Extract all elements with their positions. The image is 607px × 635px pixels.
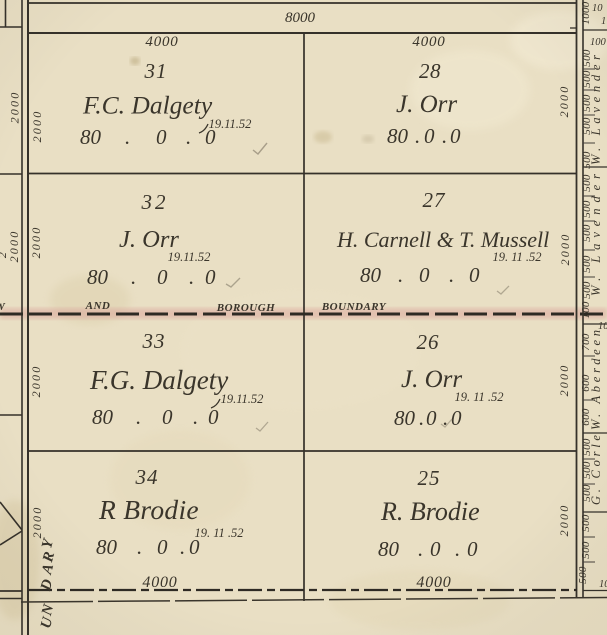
svg-text:J. Orr: J. Orr bbox=[396, 91, 457, 118]
svg-text:500: 500 bbox=[580, 541, 592, 559]
svg-text:H. Carnell & T. Mussell: H. Carnell & T. Mussell bbox=[336, 227, 549, 252]
svg-text:2000: 2000 bbox=[29, 365, 43, 398]
svg-text:19. 11 .52: 19. 11 .52 bbox=[194, 526, 243, 540]
svg-text:4000: 4000 bbox=[416, 574, 451, 591]
svg-text:2: 2 bbox=[0, 250, 9, 258]
svg-text:BOUNDARY: BOUNDARY bbox=[321, 301, 387, 313]
svg-text:31: 31 bbox=[144, 59, 168, 83]
svg-text:2000: 2000 bbox=[557, 85, 571, 118]
svg-text:80.0.0: 80.0.0 bbox=[387, 124, 461, 148]
svg-text:19. 11 .52: 19. 11 .52 bbox=[454, 390, 503, 404]
svg-text:2000: 2000 bbox=[30, 110, 44, 143]
svg-text:BOROUGH: BOROUGH bbox=[216, 302, 276, 314]
svg-text:R. Brodie: R. Brodie bbox=[380, 497, 480, 526]
svg-text:500: 500 bbox=[580, 514, 592, 532]
svg-text:2000: 2000 bbox=[557, 364, 571, 397]
svg-text:19. 11 .52: 19. 11 .52 bbox=[492, 250, 541, 264]
svg-text:26: 26 bbox=[417, 330, 440, 354]
svg-text:10: 10 bbox=[592, 3, 603, 14]
svg-text:100: 100 bbox=[590, 37, 607, 48]
svg-text:80.0.0: 80.0.0 bbox=[394, 406, 462, 430]
svg-text:1: 1 bbox=[601, 16, 606, 27]
svg-text:8000: 8000 bbox=[285, 10, 316, 26]
svg-text:28: 28 bbox=[419, 59, 441, 83]
svg-text:19.11.52: 19.11.52 bbox=[221, 392, 264, 406]
svg-text:W. Aberdeen: W. Aberdeen bbox=[589, 330, 603, 430]
svg-text:32: 32 bbox=[141, 190, 169, 214]
svg-text:4000: 4000 bbox=[412, 34, 445, 50]
svg-text:2000: 2000 bbox=[7, 230, 21, 263]
svg-text:F.C. Dalgety: F.C. Dalgety bbox=[82, 91, 213, 120]
svg-text:10: 10 bbox=[598, 321, 607, 332]
svg-text:500: 500 bbox=[577, 566, 589, 584]
svg-text:J. Orr: J. Orr bbox=[401, 366, 462, 393]
svg-text:2000: 2000 bbox=[29, 226, 43, 259]
svg-text:F.G. Dalgety: F.G. Dalgety bbox=[89, 365, 228, 395]
svg-text:27: 27 bbox=[423, 188, 447, 212]
svg-text:R Brodie: R Brodie bbox=[98, 494, 199, 525]
svg-text:10: 10 bbox=[599, 579, 607, 590]
svg-text:1000: 1000 bbox=[580, 1, 592, 24]
svg-text:100: 100 bbox=[580, 301, 592, 319]
svg-text:2000: 2000 bbox=[557, 504, 571, 537]
svg-text:4000: 4000 bbox=[142, 574, 177, 591]
svg-text:25: 25 bbox=[418, 466, 441, 490]
svg-text:J. Orr: J. Orr bbox=[119, 226, 179, 253]
svg-text:19.11.52: 19.11.52 bbox=[168, 250, 211, 264]
svg-text:34: 34 bbox=[135, 465, 159, 489]
svg-text:2000: 2000 bbox=[8, 91, 22, 124]
svg-text:AND: AND bbox=[85, 300, 111, 312]
svg-text:33: 33 bbox=[142, 329, 166, 353]
svg-text:4000: 4000 bbox=[145, 34, 178, 50]
svg-text:2000: 2000 bbox=[30, 506, 44, 539]
svg-text:2000: 2000 bbox=[558, 233, 572, 266]
